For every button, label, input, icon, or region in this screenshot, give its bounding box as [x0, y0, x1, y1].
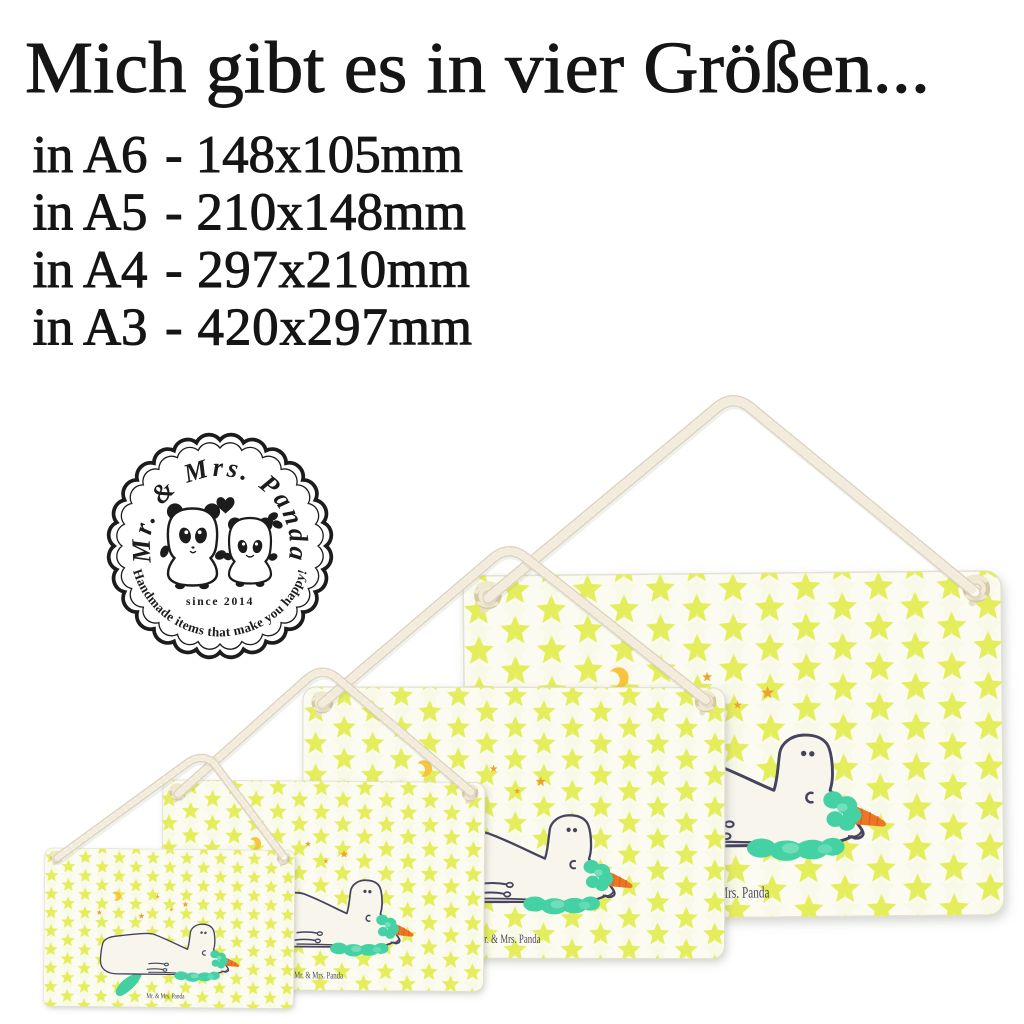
svg-text:Mich gibt es in vier Größen...: Mich gibt es in vier Größen...: [25, 27, 930, 108]
svg-text:since 2014: since 2014: [186, 595, 254, 608]
svg-text:- 297x210mm: - 297x210mm: [165, 241, 470, 299]
svg-text:in A5: in A5: [33, 184, 148, 242]
svg-text:- 148x105mm: - 148x105mm: [165, 126, 463, 184]
svg-text:- 420x297mm: - 420x297mm: [165, 299, 472, 357]
svg-text:in A3: in A3: [33, 299, 148, 357]
svg-text:in A6: in A6: [33, 126, 148, 184]
svg-text:in A4: in A4: [33, 241, 148, 299]
svg-text:- 210x148mm: - 210x148mm: [165, 184, 466, 242]
